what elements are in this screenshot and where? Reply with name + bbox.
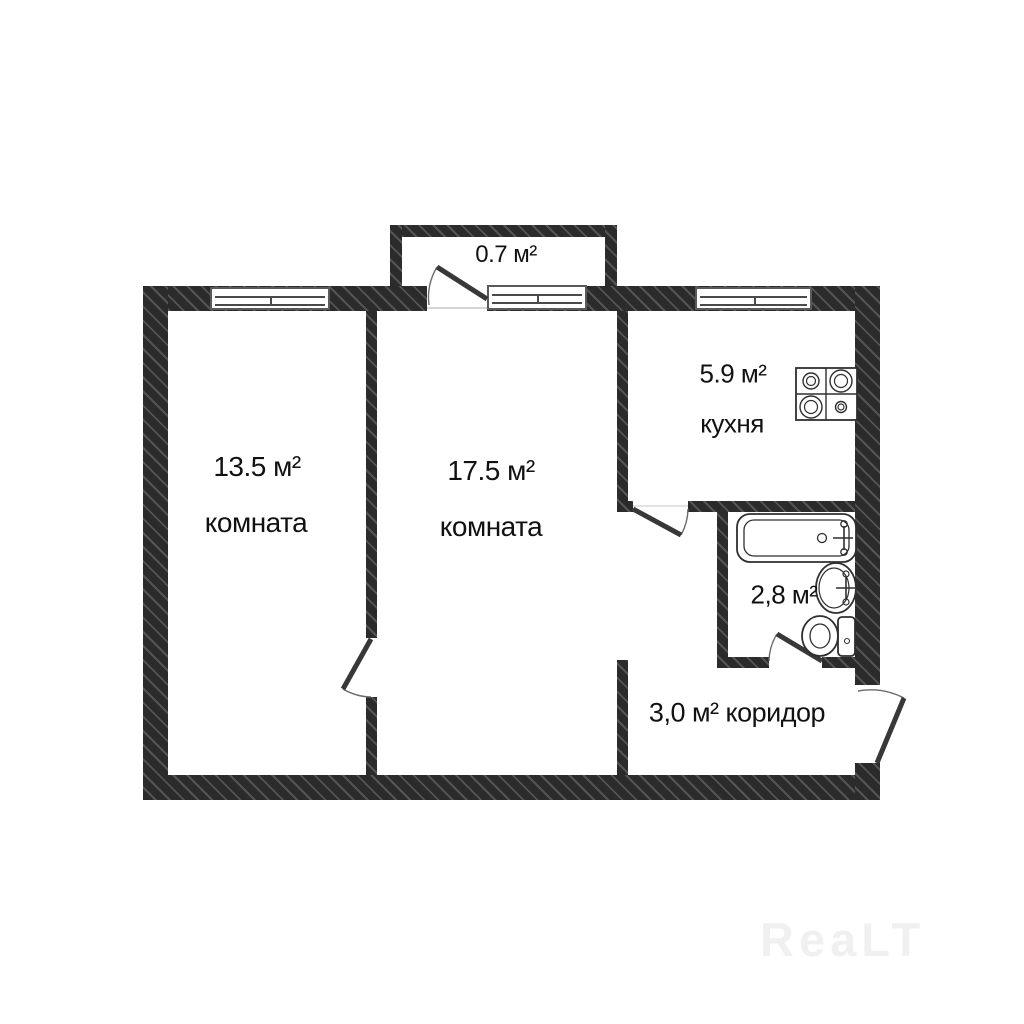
room-left-door-leaf — [343, 639, 371, 689]
room-center-name-label: комната — [440, 511, 542, 543]
kitchen-door-leaf — [633, 509, 681, 535]
toilet-icon — [802, 616, 855, 656]
bathroom-area-label: 2,8 м² — [751, 580, 818, 611]
kitchen-door-arc — [681, 509, 688, 535]
balcony-area-label: 0.7 м² — [475, 241, 537, 269]
bathtub-icon — [737, 514, 856, 562]
entrance-door-arc — [858, 690, 904, 698]
balcony-door-arc — [429, 267, 437, 305]
bathroom-door-arc — [769, 634, 777, 661]
stove-icon — [796, 368, 857, 420]
room-left-door — [343, 639, 371, 697]
entrance-door — [858, 690, 904, 763]
room-left-area-label: 13.5 м² — [213, 451, 300, 483]
kitchen-area-label: 5.9 м² — [700, 359, 767, 390]
corridor-area-label: 3,0 м² — [649, 698, 719, 728]
balcony-door — [429, 267, 487, 305]
room-left-name-label: комната — [205, 507, 307, 539]
corridor-name-label: коридор — [726, 698, 826, 728]
kitchen-name-label: кухня — [700, 409, 764, 440]
kitchen-door — [633, 509, 688, 535]
room-left-door-arc — [343, 689, 371, 697]
balcony-door-leaf — [437, 267, 487, 299]
sink-icon — [816, 563, 856, 613]
room-center-area-label: 17.5 м² — [447, 455, 534, 487]
corridor-label: 3,0 м² коридор — [649, 698, 825, 729]
entrance-door-leaf — [877, 698, 904, 763]
floorplan-canvas: 0.7 м² 13.5 м² комната 17.5 м² комната 5… — [0, 0, 1024, 1024]
watermark-logo: ReaLT — [760, 912, 925, 967]
